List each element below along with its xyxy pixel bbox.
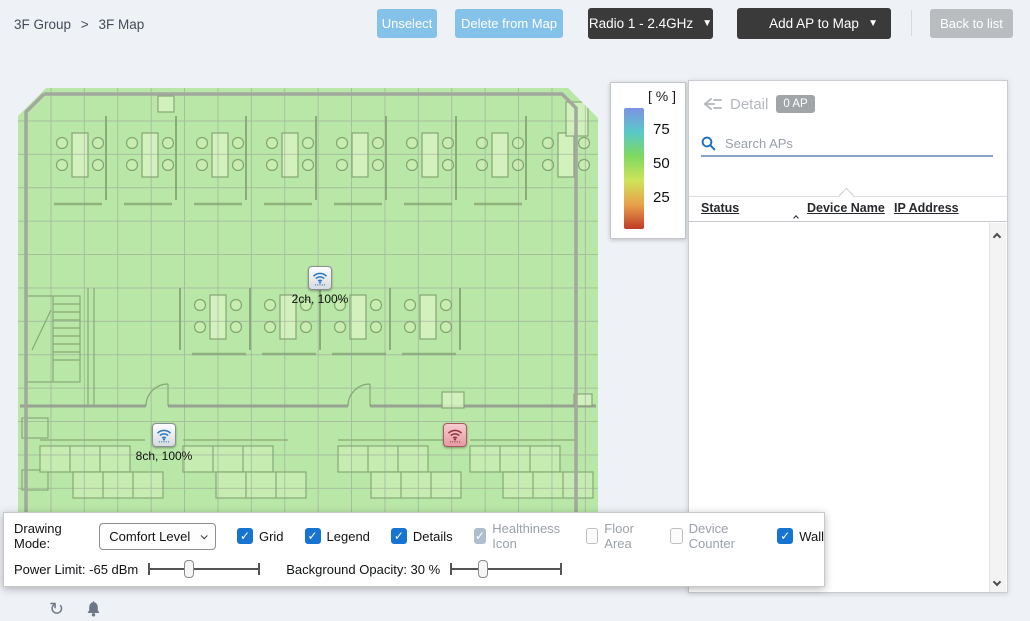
drawing-toolbar: Drawing Mode: Comfort Level ✓Grid✓Legend…	[3, 512, 825, 587]
breadcrumb-separator: >	[81, 17, 89, 32]
add-ap-to-map-dropdown[interactable]: Add AP to Map ▼	[737, 8, 891, 39]
search-aps-input[interactable]	[725, 136, 993, 151]
power-limit-slider-thumb[interactable]	[184, 560, 194, 578]
slider-right-tick	[560, 563, 562, 575]
column-ip-address[interactable]: IP Address	[894, 201, 959, 215]
checkbox-row: ✓Grid✓Legend✓Details✓Healthiness IconFlo…	[216, 521, 824, 551]
legend-title: [ % ]	[648, 88, 676, 104]
checkbox-details[interactable]: ✓Details	[391, 528, 453, 544]
comfort-legend: [ % ] 75 50 25	[610, 82, 686, 239]
wifi-icon	[447, 428, 463, 443]
legend-tick-25: 25	[653, 189, 670, 206]
slider-track[interactable]	[450, 568, 562, 570]
detail-collapse-button[interactable]: Detail 0 AP	[703, 95, 815, 113]
checkbox-box[interactable]: ✓	[237, 528, 253, 544]
header-divider	[911, 10, 912, 36]
drawing-mode-value: Comfort Level	[109, 529, 190, 544]
background-opacity-slider[interactable]	[450, 559, 562, 579]
legend-gradient-bar	[624, 108, 644, 229]
back-to-list-button[interactable]: Back to list	[930, 9, 1013, 38]
select-chevron-icon	[201, 532, 208, 539]
collapse-left-icon	[703, 97, 722, 111]
checkbox-healthiness-icon: ✓Healthiness Icon	[474, 521, 565, 551]
legend-tick-50: 50	[653, 155, 670, 172]
checkbox-label: Legend	[327, 529, 370, 544]
ap-marker-ap-2ch[interactable]: 2ch, 100%	[308, 266, 332, 290]
background-opacity-slider-thumb[interactable]	[478, 560, 488, 578]
ap-marker-ap-alert[interactable]	[443, 423, 467, 447]
slider-right-tick	[258, 563, 260, 575]
floor-map[interactable]: 2ch, 100%8ch, 100%	[18, 88, 598, 512]
checkbox-label: Wall	[799, 529, 824, 544]
refresh-icon[interactable]: ↻	[49, 599, 64, 620]
checkbox-device-counter: Device Counter	[670, 521, 756, 551]
column-status[interactable]: Status	[701, 201, 739, 215]
checkbox-label: Grid	[259, 529, 284, 544]
checkbox-box[interactable]: ✓	[305, 528, 321, 544]
checkbox-label: Details	[413, 529, 453, 544]
breadcrumb: 3F Group > 3F Map	[14, 17, 150, 32]
radio-selector-dropdown[interactable]: Radio 1 - 2.4GHz ▼	[588, 8, 713, 39]
checkbox-box	[586, 528, 598, 544]
ap-label: 8ch, 100%	[136, 449, 193, 463]
checkbox-label: Healthiness Icon	[492, 521, 565, 551]
scroll-down-arrow[interactable]	[994, 572, 1011, 588]
checkbox-floor-area: Floor Area	[586, 521, 649, 551]
wifi-icon	[156, 428, 172, 443]
delete-from-map-button[interactable]: Delete from Map	[455, 9, 563, 38]
checkbox-wall[interactable]: ✓Wall	[777, 528, 824, 544]
checkbox-box	[670, 528, 683, 544]
search-icon	[701, 136, 716, 151]
notification-bell-icon[interactable]	[86, 601, 101, 618]
ap-label: 2ch, 100%	[292, 292, 349, 306]
unselect-button[interactable]: Unselect	[377, 9, 437, 38]
detail-panel-title: Detail	[730, 96, 768, 113]
breadcrumb-current: 3F Map	[98, 17, 144, 32]
ap-count-badge: 0 AP	[776, 95, 814, 113]
ap-search-row	[701, 131, 993, 157]
power-limit-slider[interactable]	[148, 559, 260, 579]
chevron-down-icon: ▼	[702, 19, 712, 29]
checkbox-legend[interactable]: ✓Legend	[305, 528, 370, 544]
radio-selector-label: Radio 1 - 2.4GHz	[589, 16, 693, 31]
scrollbar[interactable]	[989, 223, 1006, 592]
ap-map-page: 3F Group > 3F Map Unselect Delete from M…	[0, 0, 1030, 621]
background-opacity-label: Background Opacity: 30 %	[286, 562, 440, 577]
sort-ascending-icon	[794, 207, 798, 225]
slider-track[interactable]	[148, 568, 260, 570]
checkbox-label: Floor Area	[604, 521, 649, 551]
checkbox-box[interactable]: ✓	[391, 528, 407, 544]
breadcrumb-group[interactable]: 3F Group	[14, 17, 71, 32]
checkbox-grid[interactable]: ✓Grid	[237, 528, 284, 544]
checkbox-label: Device Counter	[689, 521, 757, 551]
wifi-icon	[312, 271, 328, 286]
column-device-name[interactable]: Device Name	[807, 201, 885, 215]
add-ap-label: Add AP to Map	[769, 16, 859, 31]
scroll-up-arrow[interactable]	[994, 227, 1011, 243]
drawing-mode-select[interactable]: Comfort Level	[99, 523, 216, 550]
checkbox-box[interactable]: ✓	[777, 528, 793, 544]
ap-marker-ap-8ch[interactable]: 8ch, 100%	[152, 423, 176, 447]
checkbox-box: ✓	[474, 528, 487, 544]
drawing-mode-label: Drawing Mode:	[14, 521, 92, 551]
legend-tick-75: 75	[653, 121, 670, 138]
ap-table-header: Status Device Name IP Address	[689, 201, 1007, 222]
chevron-down-icon: ▼	[868, 19, 878, 29]
power-limit-label: Power Limit: -65 dBm	[14, 562, 138, 577]
